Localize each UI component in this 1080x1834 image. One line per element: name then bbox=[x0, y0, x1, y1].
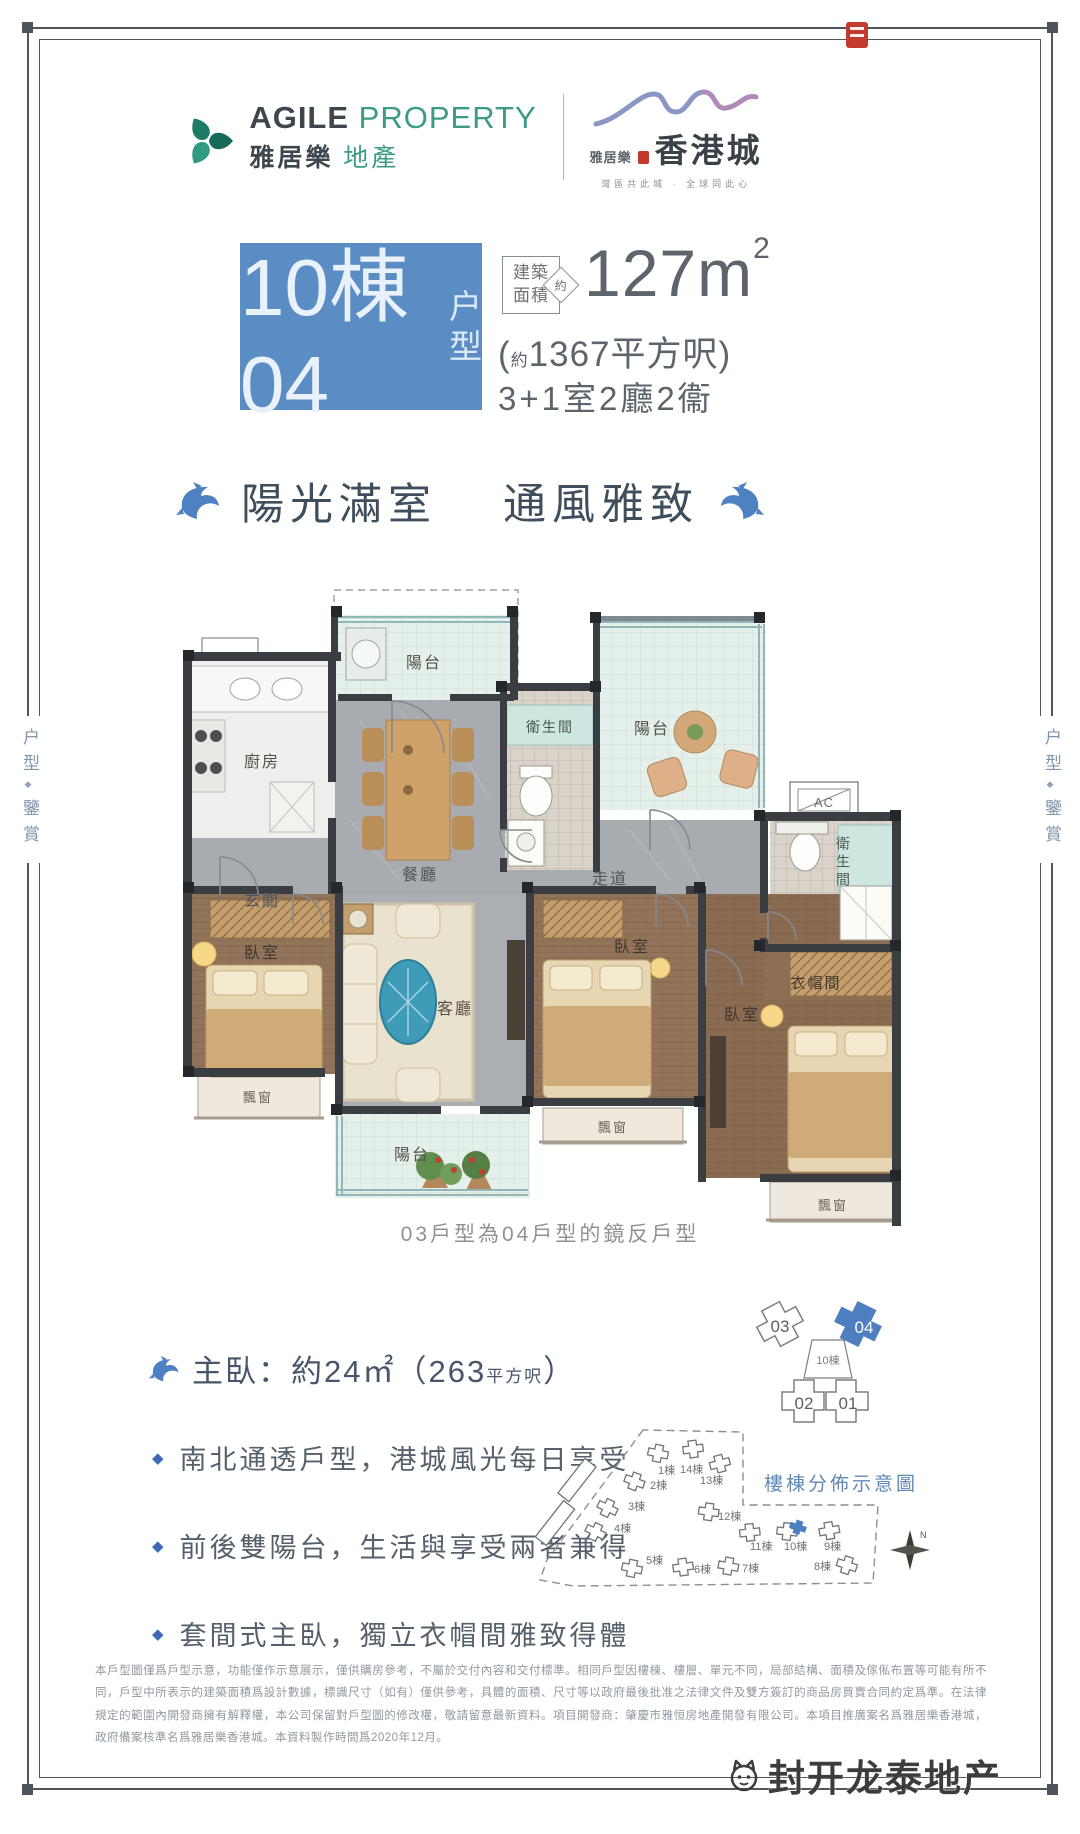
unit-01-label: 01 bbox=[839, 1394, 858, 1413]
armchair bbox=[396, 904, 440, 938]
room-label: 臥室 bbox=[614, 938, 650, 956]
room-label: 玄關 bbox=[244, 892, 280, 910]
ac-label: AC bbox=[814, 795, 834, 810]
building-label: 13棟 bbox=[700, 1473, 723, 1487]
unit-03-label: 03 bbox=[771, 1317, 790, 1336]
toilet bbox=[520, 776, 552, 816]
building-label: 4棟 bbox=[614, 1521, 631, 1535]
agile-logo: AGILE PROPERTY 雅居樂 地產 bbox=[177, 100, 536, 174]
sofa bbox=[343, 944, 377, 1064]
building-label: 11棟 bbox=[750, 1539, 772, 1553]
area-value: 127m2 bbox=[584, 232, 771, 311]
header-divider bbox=[563, 94, 564, 180]
unit-04-label: 04 bbox=[855, 1318, 874, 1337]
tv-cabinet bbox=[507, 940, 525, 1040]
dolphin-icon bbox=[719, 482, 765, 520]
side-label-text: 户型 bbox=[1042, 728, 1061, 780]
agile-trefoil-icon bbox=[177, 107, 237, 167]
diamond-bullet-icon: ◆ bbox=[152, 1449, 164, 1467]
diamond-separator-icon: ◆ bbox=[24, 780, 34, 799]
building-label: 12棟 bbox=[718, 1509, 741, 1523]
hk-brand-small: 雅居樂 bbox=[590, 147, 632, 172]
room-label: 陽台 bbox=[406, 654, 442, 672]
poster-page: 户型◆鑒賞 户型◆鑒賞 AGILE PROPERTY 雅居樂 地產 bbox=[0, 0, 1080, 1834]
red-seal-icon bbox=[846, 22, 868, 48]
room-label: 飄窗 bbox=[818, 1198, 848, 1213]
unit-number: 10棟04 bbox=[240, 223, 441, 431]
room-label: 飄窗 bbox=[243, 1090, 273, 1105]
stove bbox=[189, 720, 225, 792]
agency-watermark: 封开龙泰地产 bbox=[726, 1748, 1002, 1802]
hk-tagline: 灣區共此城 · 全球同此心 bbox=[601, 177, 751, 190]
master-size-text: 主臥：約24㎡（263平方呎） bbox=[192, 1346, 576, 1391]
room-label: 臥室 bbox=[724, 1006, 760, 1024]
building-label: 6棟 bbox=[694, 1562, 711, 1576]
building-label: 10棟 bbox=[784, 1539, 807, 1553]
room-label: 衣帽間 bbox=[790, 975, 841, 992]
mirror-note: 03戶型為04戶型的鏡反戶型 bbox=[150, 1218, 950, 1248]
watermark-text: 封开龙泰地产 bbox=[768, 1748, 1002, 1802]
building-label: 3棟 bbox=[628, 1499, 645, 1513]
armchair bbox=[396, 1068, 440, 1102]
hk-seal-icon bbox=[638, 151, 649, 164]
frame-corner bbox=[1047, 1784, 1058, 1795]
frame-corner bbox=[22, 1784, 33, 1795]
room-label: 客廳 bbox=[437, 999, 473, 1018]
building-label: 2棟 bbox=[650, 1478, 667, 1492]
mountain-stroke-icon bbox=[592, 84, 760, 128]
lamp bbox=[192, 942, 216, 966]
agile-name-cn: 雅居樂 地產 bbox=[249, 138, 536, 174]
building-label: 9棟 bbox=[824, 1539, 841, 1553]
room-label-bath-right: 衛生間 bbox=[833, 836, 853, 890]
kitchen-counter bbox=[189, 666, 335, 712]
building-label: 5棟 bbox=[646, 1553, 663, 1567]
site-plan: 1棟 14棟 2棟 13棟 3棟 12棟 4棟 11棟 10棟 9棟 5棟 6棟… bbox=[452, 1420, 952, 1670]
room-label: 餐廳 bbox=[402, 865, 438, 884]
mascot-icon bbox=[726, 1757, 762, 1793]
agile-name-en: AGILE PROPERTY bbox=[249, 100, 536, 136]
plant bbox=[462, 1151, 490, 1179]
disclaimer-text: 本戶型圖僅爲戶型示意，功能僅作示意展示，僅供購房參考，不屬於交付內容和交付標準。… bbox=[95, 1660, 987, 1750]
side-label-text: 鑒賞 bbox=[1042, 799, 1061, 851]
side-label-left: 户型◆鑒賞 bbox=[14, 716, 44, 863]
building-label: 14棟 bbox=[680, 1462, 703, 1476]
hkcity-logo: 雅居樂 香港城 灣區共此城 · 全球同此心 bbox=[590, 84, 763, 190]
building-label: 8棟 bbox=[814, 1559, 831, 1573]
unit-suffix: 户型 bbox=[449, 287, 482, 366]
building-label: 7棟 bbox=[742, 1561, 759, 1575]
diamond-bullet-icon: ◆ bbox=[152, 1625, 164, 1643]
room-label: 臥室 bbox=[244, 944, 280, 962]
site-plan-title: 樓棟分佈示意圖 bbox=[764, 1473, 918, 1495]
room-label: 陽台 bbox=[394, 1146, 430, 1164]
diamond-separator-icon: ◆ bbox=[1046, 780, 1056, 799]
diamond-bullet-icon: ◆ bbox=[152, 1537, 164, 1555]
dining-table bbox=[386, 720, 450, 860]
compass-n: N bbox=[920, 1530, 927, 1540]
frame-corner bbox=[22, 22, 33, 33]
lamp bbox=[761, 1005, 783, 1027]
side-label-right: 户型◆鑒賞 bbox=[1036, 716, 1066, 863]
side-label-text: 户型 bbox=[20, 728, 39, 780]
hk-brand-main: 香港城 bbox=[655, 124, 763, 172]
floor-plan: 陽台 廚房 衛生間 陽台 餐廳 玄關 走道 臥室 客廳 臥室 臥室 衣帽間 飄窗… bbox=[150, 520, 950, 1230]
header: AGILE PROPERTY 雅居樂 地產 雅居樂 香港城 灣區共此城 · 全球… bbox=[0, 84, 940, 190]
tv-cabinet bbox=[710, 1036, 726, 1128]
room-label: 陽台 bbox=[634, 720, 670, 738]
plant bbox=[440, 1163, 462, 1185]
dolphin-icon bbox=[148, 1356, 180, 1382]
room-layout: 3+1室2廳2衞 bbox=[498, 372, 714, 420]
area-sqft: (約1367平方呎) bbox=[498, 326, 731, 377]
unit-title-box: 10棟04 户型 bbox=[240, 243, 482, 410]
lamp bbox=[650, 958, 670, 978]
toilet bbox=[790, 833, 820, 871]
tower-label: 10棟 bbox=[816, 1353, 839, 1367]
room-label: 衛生間 bbox=[526, 719, 574, 735]
frame-corner bbox=[1047, 22, 1058, 33]
building-label: 1棟 bbox=[658, 1463, 675, 1477]
side-label-text: 鑒賞 bbox=[20, 799, 39, 851]
room-label: 飄窗 bbox=[598, 1120, 628, 1135]
compass-icon: N bbox=[890, 1530, 930, 1570]
room-label: 廚房 bbox=[244, 752, 280, 771]
master-bedroom-line: 主臥：約24㎡（263平方呎） bbox=[148, 1346, 576, 1391]
unit-02-label: 02 bbox=[795, 1394, 814, 1413]
room-label: 走道 bbox=[592, 870, 628, 888]
dolphin-icon bbox=[175, 482, 221, 520]
